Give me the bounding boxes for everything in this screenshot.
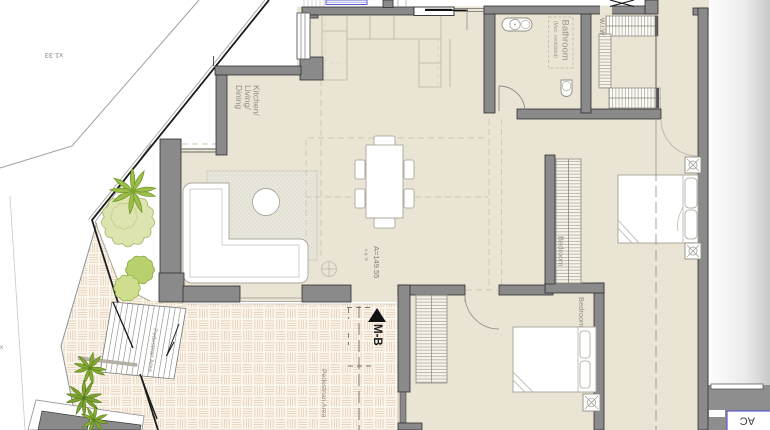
svg-text:Bathroom: Bathroom — [560, 20, 571, 61]
svg-text:x: x — [0, 345, 3, 351]
svg-text:M-B: M-B — [371, 324, 383, 346]
svg-text:Bedroom: Bedroom — [557, 236, 566, 266]
svg-text:AC: AC — [740, 415, 755, 427]
svg-text:A=149.55: A=149.55 — [372, 246, 381, 278]
svg-text:(Mec. ventilated): (Mec. ventilated) — [552, 21, 558, 58]
svg-text:Dining: Dining — [234, 85, 244, 109]
svg-text:Pedestrian Area: Pedestrian Area — [320, 369, 327, 418]
svg-text:x1.33: x1.33 — [45, 51, 63, 60]
svg-text:s.q. m: s.q. m — [364, 249, 369, 262]
svg-text:W.I.W: W.I.W — [598, 18, 605, 36]
svg-text:Bedroom: Bedroom — [577, 297, 586, 327]
